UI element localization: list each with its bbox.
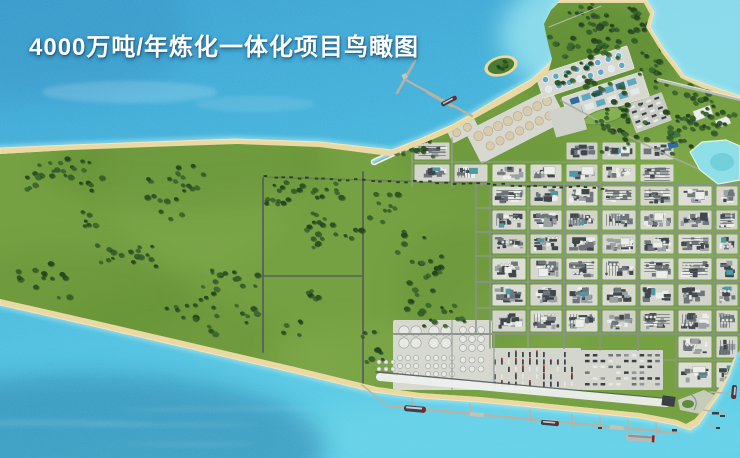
truck-yard: [581, 350, 663, 390]
page-title: 4000万吨/年炼化一体化项目鸟瞰图: [29, 27, 419, 62]
scene-svg: [0, 0, 740, 458]
birdseye-rendering: 4000万吨/年炼化一体化项目鸟瞰图: [0, 0, 740, 458]
